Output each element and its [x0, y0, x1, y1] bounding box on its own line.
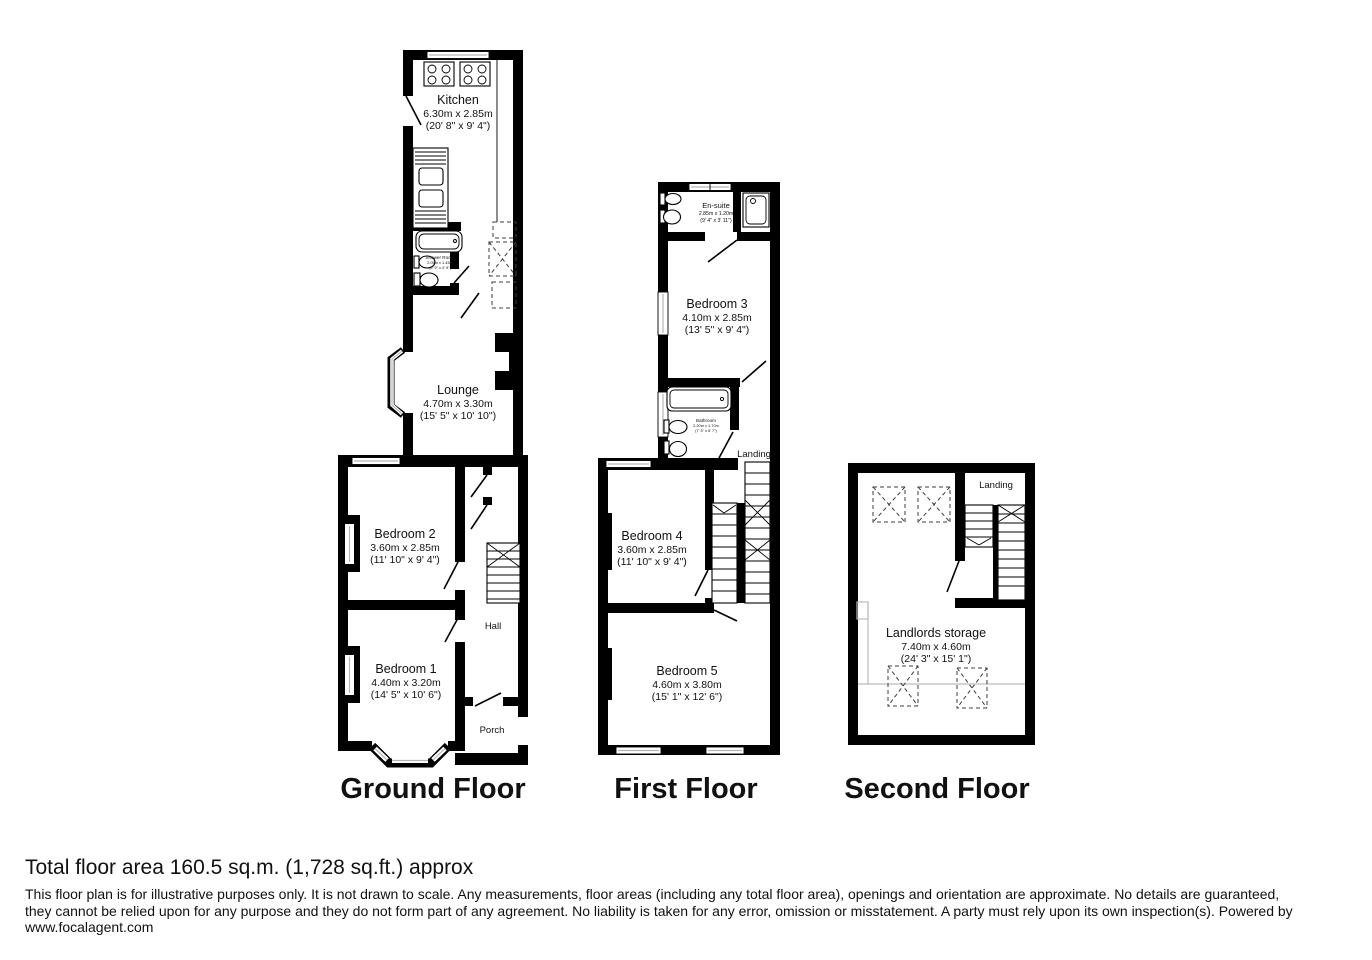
- bathroom-bathtub-icon: [667, 387, 731, 411]
- room-label-bedroom-2: Bedroom 2 3.60m x 2.85m (11' 10" x 9' 4"…: [370, 527, 440, 566]
- svg-text:6.30m x 2.85m: 6.30m x 2.85m: [423, 108, 493, 120]
- floorplan-page: Kitchen 6.30m x 2.85m (20' 8" x 9' 4") S…: [0, 0, 1372, 960]
- svg-text:En-suite: En-suite: [702, 201, 730, 210]
- shower-icon: [743, 193, 769, 227]
- room-label-hall: Hall: [485, 621, 501, 632]
- staircase-icon-ground: [487, 543, 520, 603]
- svg-text:2.85m x 1.20m: 2.85m x 1.20m: [699, 211, 733, 217]
- svg-text:(11' 10" x 9' 4"): (11' 10" x 9' 4"): [617, 556, 687, 568]
- svg-text:7.40m x 4.60m: 7.40m x 4.60m: [901, 641, 971, 653]
- bedroom2-top-window: [352, 458, 400, 465]
- svg-text:4.60m x 3.80m: 4.60m x 3.80m: [652, 679, 722, 691]
- first-floor-title: First Floor: [614, 773, 757, 805]
- hob-icon: [424, 62, 490, 86]
- cupboard-dashed-box: [489, 222, 516, 308]
- room-label-en-suite: En-suite 2.85m x 1.20m (9' 4" x 3' 11"): [699, 201, 733, 224]
- disclaimer-line-3: www.focalagent.com: [25, 919, 1355, 936]
- svg-text:(13' 5" x 9' 4"): (13' 5" x 9' 4"): [685, 324, 750, 336]
- ensuite-top-window: [689, 184, 731, 191]
- svg-text:(7' 3" x 5' 7"): (7' 3" x 5' 7"): [695, 428, 717, 433]
- bedroom2-side-window: [338, 515, 360, 572]
- kitchen-sink-icon: [413, 148, 448, 228]
- ground-floor-plan: Kitchen 6.30m x 2.85m (20' 8" x 9' 4") S…: [330, 40, 540, 810]
- room-label-bathroom: Bathroom 2.20m x 1.70m (7' 3" x 5' 7"): [693, 418, 719, 433]
- room-label-kitchen: Kitchen 6.30m x 2.85m (20' 8" x 9' 4"): [423, 93, 493, 132]
- disclaimer: This floor plan is for illustrative purp…: [25, 886, 1355, 936]
- room-label-porch: Porch: [480, 725, 505, 736]
- room-label-landlords-storage: Landlords storage 7.40m x 4.60m (24' 3" …: [886, 626, 986, 665]
- room-label-bedroom-4: Bedroom 4 3.60m x 2.85m (11' 10" x 9' 4"…: [617, 529, 687, 568]
- bathroom-toilet-icon: [664, 441, 687, 457]
- svg-text:(20' 8" x 9' 4"): (20' 8" x 9' 4"): [426, 120, 491, 132]
- bedroom1-bay-window: [372, 746, 448, 763]
- svg-text:(15' 5" x 10' 10"): (15' 5" x 10' 10"): [420, 410, 496, 422]
- total-floor-area: Total floor area 160.5 sq.m. (1,728 sq.f…: [25, 856, 1355, 880]
- ground-floor-title: Ground Floor: [340, 773, 525, 805]
- ensuite-toilet-icon: [660, 210, 681, 224]
- svg-text:Bedroom 4: Bedroom 4: [621, 529, 682, 543]
- svg-text:(15' 1" x 12' 6"): (15' 1" x 12' 6"): [652, 691, 722, 703]
- footer: Total floor area 160.5 sq.m. (1,728 sq.f…: [25, 856, 1355, 936]
- svg-text:Bedroom 2: Bedroom 2: [374, 527, 435, 541]
- svg-text:(14' 5" x 10' 6"): (14' 5" x 10' 6"): [371, 689, 441, 701]
- svg-text:4.40m x 3.20m: 4.40m x 3.20m: [371, 677, 441, 689]
- disclaimer-line-2: they cannot be relied upon for any purpo…: [25, 903, 1355, 920]
- lounge-bay-window: [391, 350, 403, 415]
- disclaimer-line-1: This floor plan is for illustrative purp…: [25, 886, 1355, 903]
- room-label-bedroom-1: Bedroom 1 4.40m x 3.20m (14' 5" x 10' 6"…: [371, 662, 441, 701]
- svg-text:4.70m x 3.30m: 4.70m x 3.30m: [423, 398, 493, 410]
- ensuite-basin-icon: [660, 193, 681, 205]
- bathtub-icon: [416, 231, 462, 252]
- room-label-lounge: Lounge 4.70m x 3.30m (15' 5" x 10' 10"): [420, 383, 496, 422]
- bathroom-basin-icon: [664, 420, 687, 434]
- bedroom4-top-window: [606, 461, 651, 468]
- svg-text:Bedroom 3: Bedroom 3: [686, 297, 747, 311]
- toilet-icon: [414, 273, 438, 287]
- first-floor-plan: En-suite 2.85m x 1.20m (9' 4" x 3' 11") …: [588, 170, 792, 810]
- bedroom1-side-window: [338, 646, 360, 703]
- room-label-shower-room: Shower Room 2.05m x 1.45m (6' 9" x 4' 9"…: [425, 255, 454, 270]
- svg-text:3.60m x 2.85m: 3.60m x 2.85m: [370, 542, 440, 554]
- svg-text:Bedroom 5: Bedroom 5: [656, 664, 717, 678]
- bedroom3-side-window: [658, 292, 668, 335]
- svg-text:(9' 4" x 3' 11"): (9' 4" x 3' 11"): [700, 218, 732, 224]
- svg-text:Kitchen: Kitchen: [437, 93, 479, 107]
- porch-front-door-opening: [518, 717, 528, 745]
- room-label-landing-first: Landing: [737, 449, 771, 460]
- svg-text:Bedroom 1: Bedroom 1: [375, 662, 436, 676]
- landing-door-swing: [947, 561, 959, 592]
- svg-text:(11' 10" x 9' 4"): (11' 10" x 9' 4"): [370, 554, 440, 566]
- room-label-bedroom-5: Bedroom 5 4.60m x 3.80m (15' 1" x 12' 6"…: [652, 664, 722, 703]
- svg-text:(6' 9" x 4' 9"): (6' 9" x 4' 9"): [429, 265, 451, 270]
- room-label-bedroom-3: Bedroom 3 4.10m x 2.85m (13' 5" x 9' 4"): [682, 297, 752, 336]
- kitchen-top-window: [427, 52, 489, 59]
- room-label-landing-second: Landing: [979, 480, 1013, 491]
- second-floor-plan: Landing Landlords storage 7.40m x 4.60m …: [838, 455, 1047, 810]
- svg-text:Landlords storage: Landlords storage: [886, 626, 986, 640]
- svg-text:4.10m x 2.85m: 4.10m x 2.85m: [682, 312, 752, 324]
- svg-text:3.60m x 2.85m: 3.60m x 2.85m: [617, 544, 687, 556]
- second-floor-title: Second Floor: [844, 773, 1029, 805]
- svg-text:Lounge: Lounge: [437, 383, 479, 397]
- svg-text:(24' 3" x 15' 1"): (24' 3" x 15' 1"): [901, 653, 971, 665]
